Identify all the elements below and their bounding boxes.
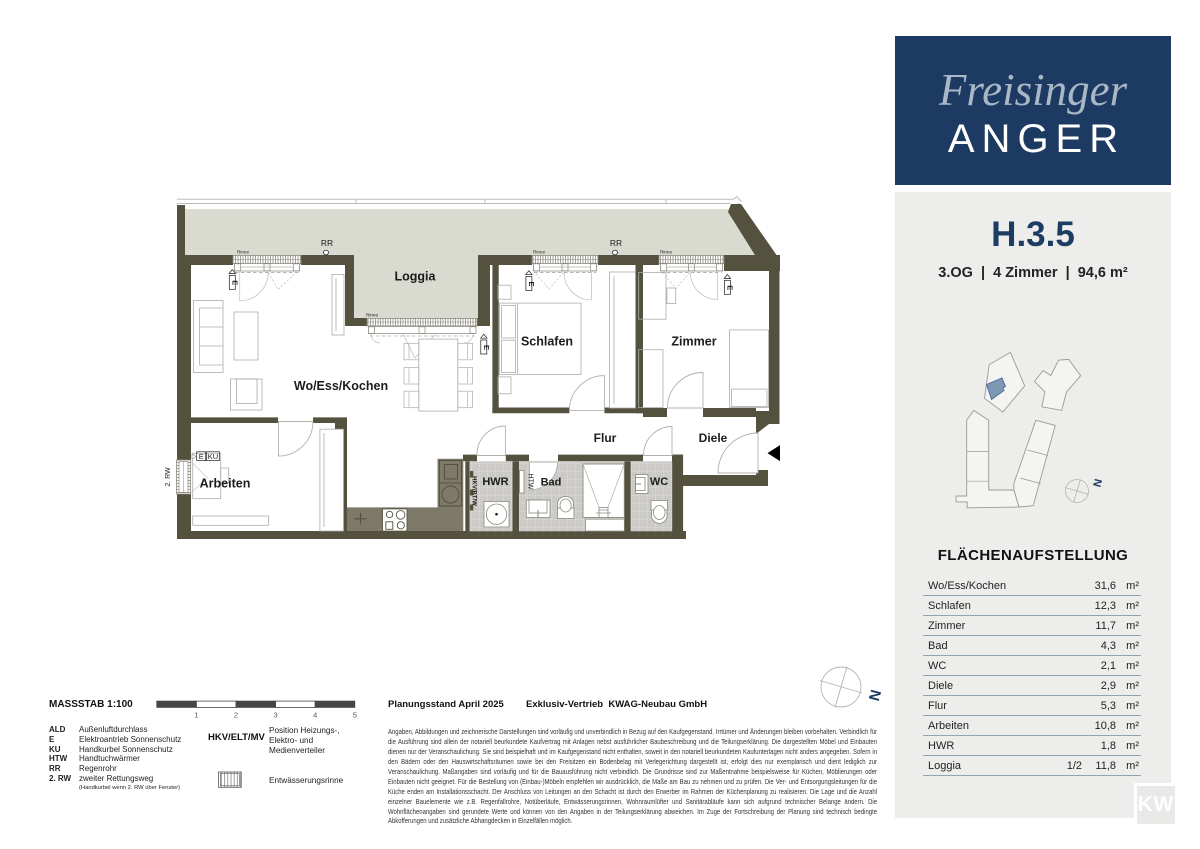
svg-text:HKV/BT/W: HKV/BT/W (471, 476, 477, 506)
svg-text:RR: RR (321, 238, 333, 248)
svg-text:E: E (725, 285, 734, 290)
svg-text:Rinne: Rinne (660, 250, 672, 255)
svg-text:RR: RR (610, 238, 622, 248)
svg-text:KU: KU (208, 452, 218, 461)
svg-text:2: 2 (234, 711, 238, 720)
svg-text:Zimmer: Zimmer (671, 335, 716, 349)
svg-text:Rinne: Rinne (237, 250, 249, 255)
svg-text:5: 5 (353, 711, 357, 720)
svg-text:Schlafen: Schlafen (521, 335, 573, 349)
svg-text:N: N (865, 688, 884, 703)
svg-text:N: N (1090, 477, 1104, 488)
svg-text:Arbeiten: Arbeiten (200, 477, 251, 491)
svg-text:1: 1 (194, 711, 198, 720)
svg-text:Rinne: Rinne (366, 313, 378, 318)
svg-text:E: E (230, 280, 239, 285)
svg-text:Flur: Flur (594, 431, 617, 445)
svg-text:E: E (527, 281, 536, 286)
svg-text:HTW: HTW (527, 474, 534, 490)
svg-text:E: E (482, 345, 491, 350)
svg-text:Loggia: Loggia (395, 270, 437, 284)
svg-text:WC: WC (650, 476, 668, 488)
svg-text:4: 4 (313, 711, 317, 720)
svg-text:E: E (199, 452, 204, 461)
svg-text:Rinne: Rinne (533, 250, 545, 255)
svg-text:3: 3 (274, 711, 278, 720)
svg-text:Wo/Ess/Kochen: Wo/Ess/Kochen (294, 379, 388, 393)
svg-text:2. RW: 2. RW (165, 467, 172, 487)
svg-text:Diele: Diele (699, 431, 728, 445)
svg-text:HWR: HWR (482, 476, 508, 488)
svg-text:Bad: Bad (541, 477, 562, 489)
